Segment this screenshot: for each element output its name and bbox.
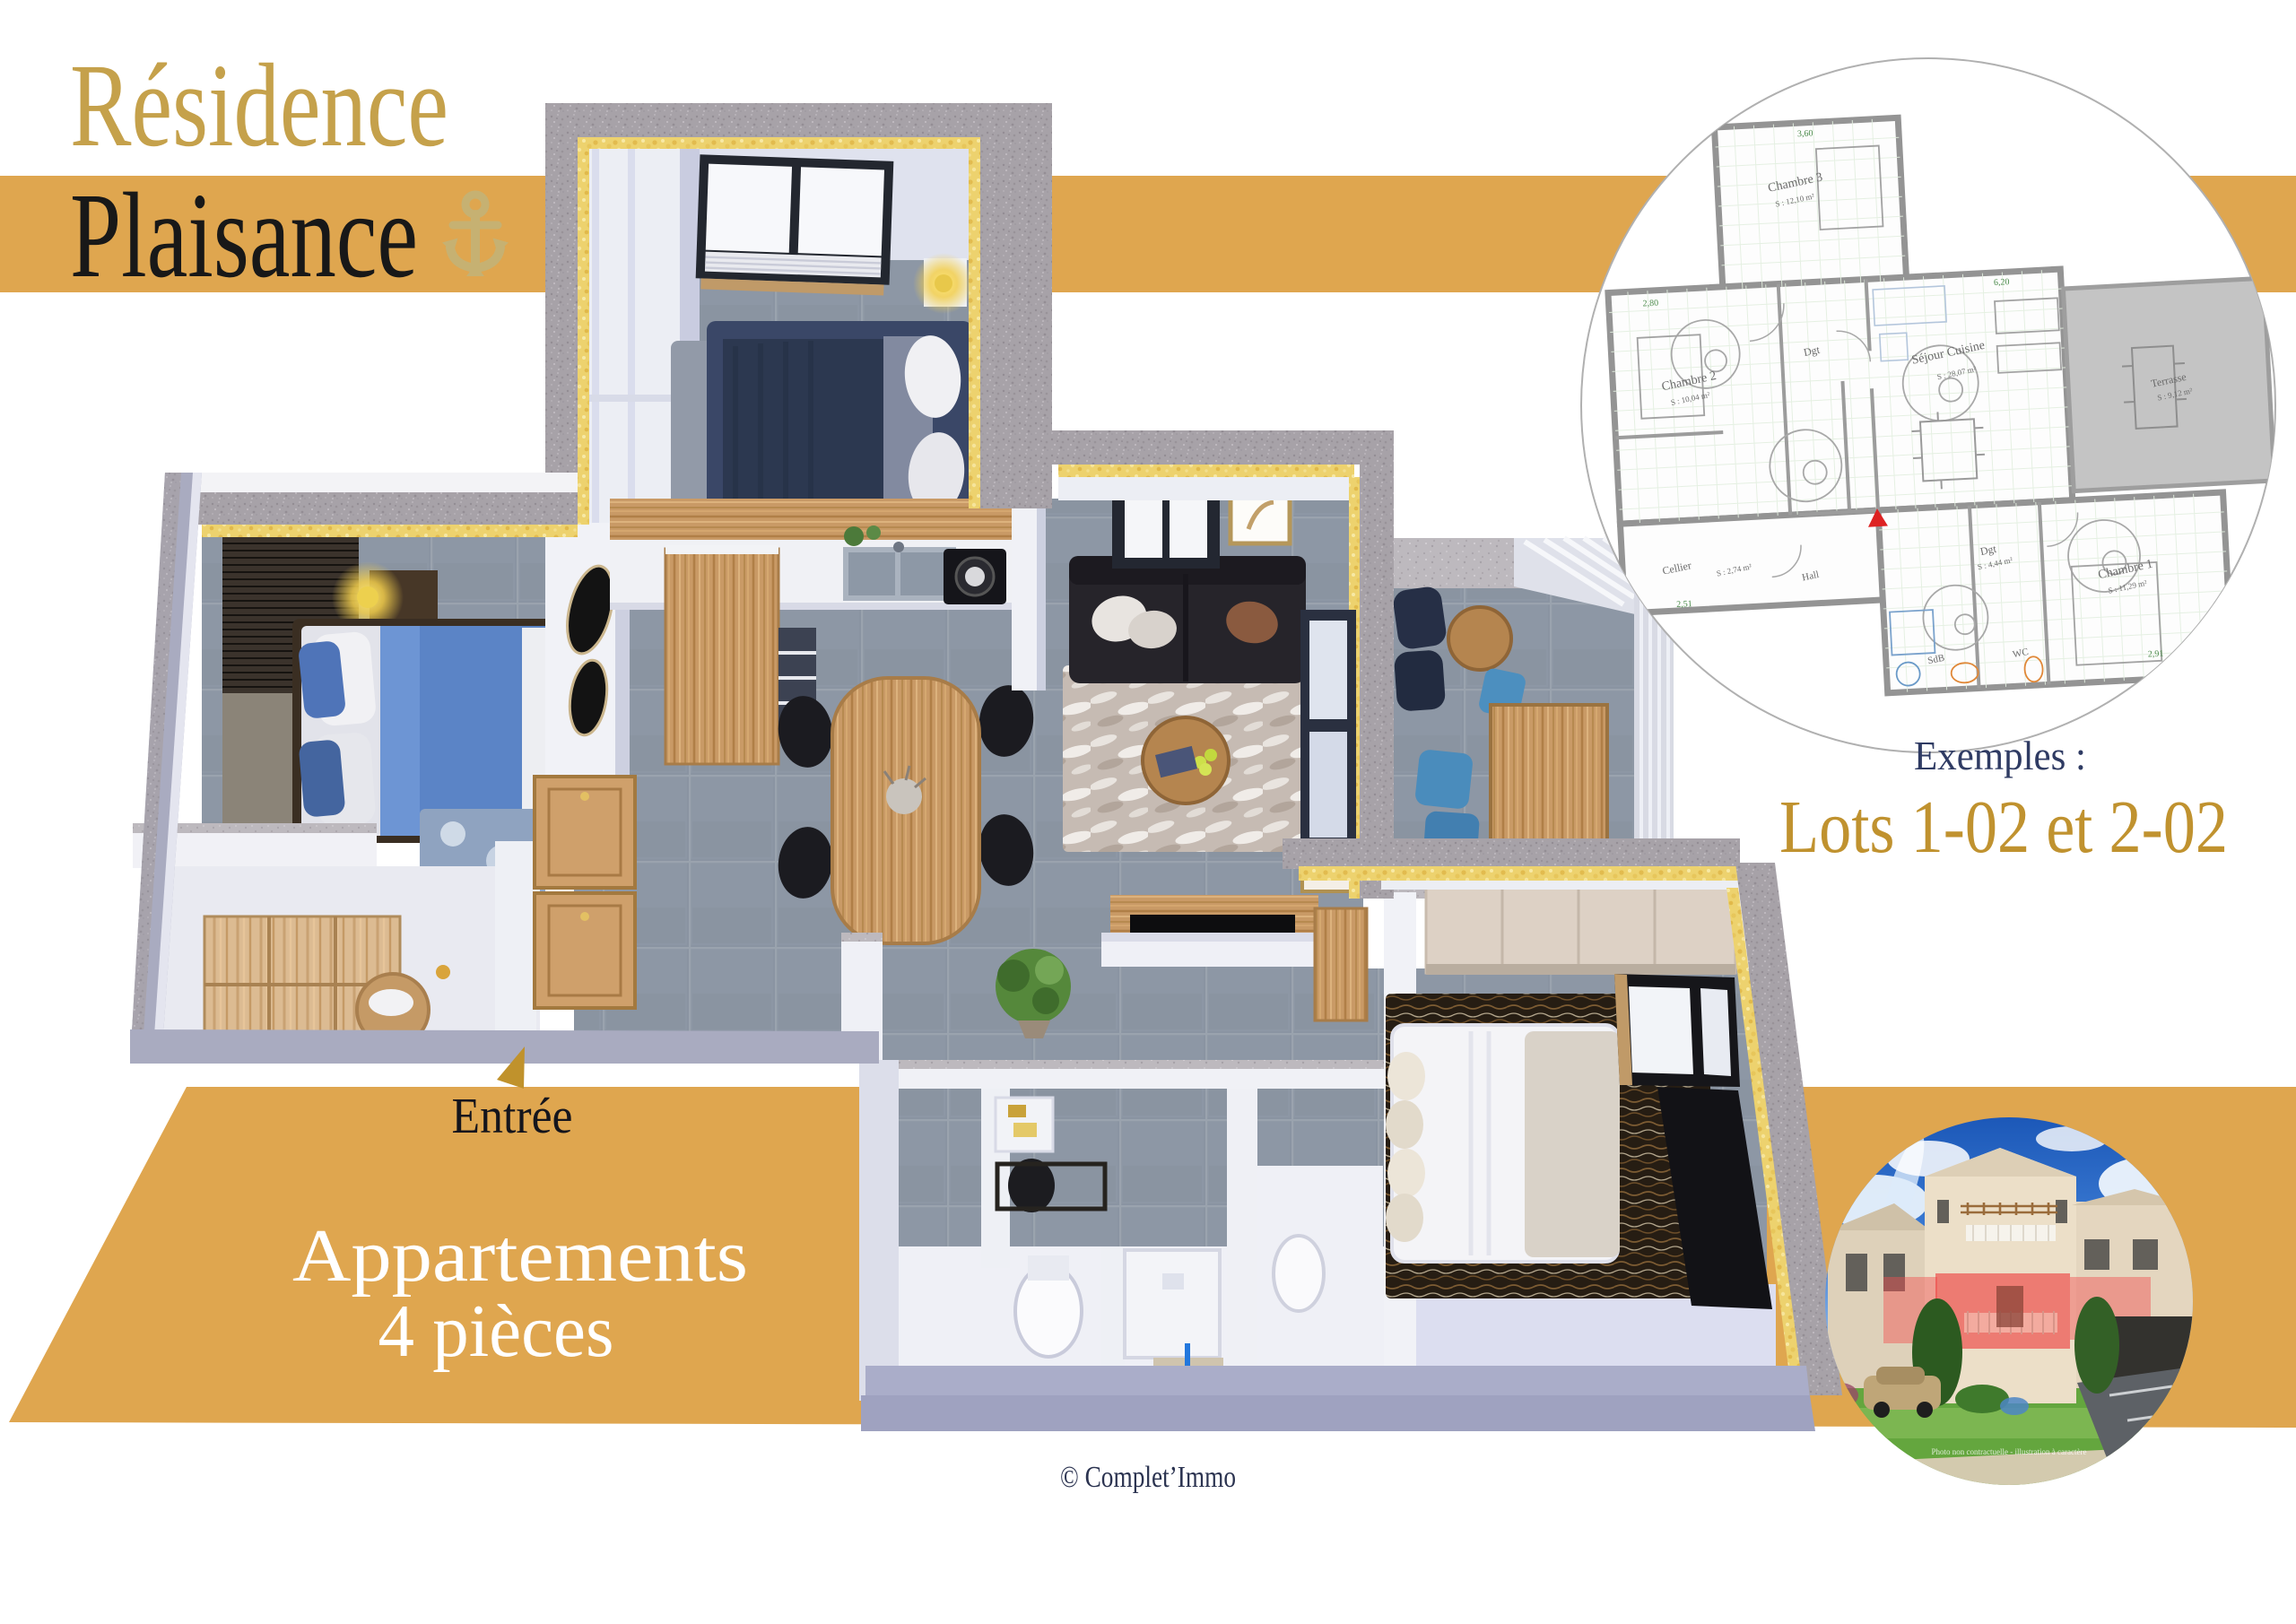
svg-text:2,80: 2,80 (1642, 299, 1658, 309)
svg-text:Appartements: Appartements (292, 1214, 748, 1298)
svg-text:3,60: 3,60 (1797, 128, 1813, 139)
svg-text:4 pièces: 4 pièces (378, 1290, 614, 1373)
svg-text:Résidence: Résidence (70, 39, 448, 171)
svg-text:6,20: 6,20 (1994, 277, 2010, 288)
svg-text:Entrée: Entrée (452, 1089, 573, 1144)
svg-text:Exemples :: Exemples : (1914, 733, 2086, 778)
svg-text:© Complet’Immo: © Complet’Immo (1060, 1461, 1236, 1494)
svg-text:Lots 1-02 et 2-02: Lots 1-02 et 2-02 (1779, 786, 2228, 869)
svg-text:Plaisance: Plaisance (70, 169, 418, 303)
svg-text:Photo non contractuelle - illu: Photo non contractuelle - illustration à… (1932, 1447, 2087, 1456)
svg-text:2,91: 2,91 (2148, 649, 2164, 660)
svg-text:2,51: 2,51 (1676, 599, 1692, 610)
